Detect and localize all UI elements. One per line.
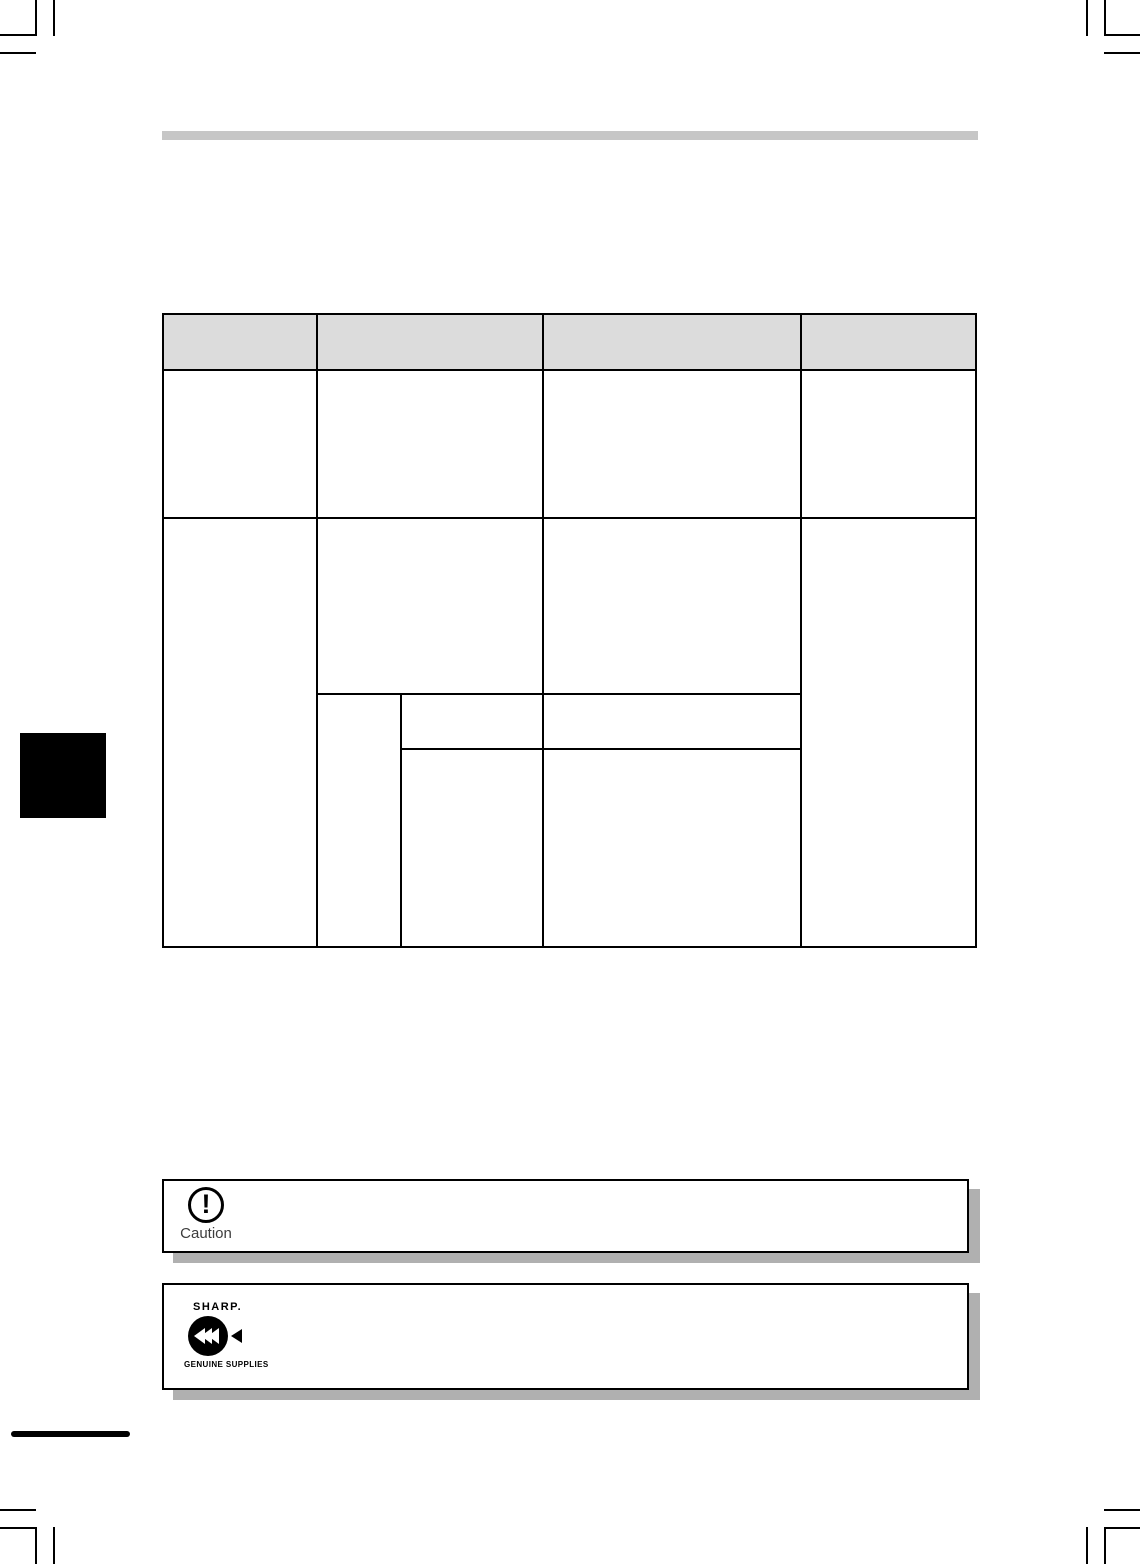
crop-mark-line	[1104, 34, 1140, 36]
grid-line	[164, 517, 975, 519]
left-triangle-icon	[231, 1329, 242, 1343]
crop-mark-line	[0, 1509, 36, 1511]
crop-mark-line	[0, 34, 36, 36]
crop-mark-line	[1086, 1527, 1088, 1564]
crop-mark-line	[35, 0, 37, 36]
table-header-cell	[544, 315, 800, 369]
grid-line	[316, 315, 318, 946]
footer-rule	[11, 1431, 130, 1437]
rewind-arrows-icon	[188, 1316, 228, 1356]
table-header-cell	[318, 315, 542, 369]
crop-mark-line	[35, 1527, 37, 1564]
grid-line	[400, 748, 802, 750]
grid-line	[316, 693, 802, 695]
genuine-supplies-box: SHARP. GENUINE SUPPLIES	[162, 1283, 969, 1390]
section-divider-bar	[162, 131, 978, 140]
crop-mark-line	[53, 1527, 55, 1564]
crop-mark-line	[1086, 0, 1088, 36]
crop-mark-line	[1104, 0, 1106, 36]
crop-mark-line	[1104, 1527, 1106, 1564]
sharp-logo-text: SHARP.	[193, 1301, 242, 1313]
table-header-cell	[164, 315, 316, 369]
crop-mark-line	[53, 0, 55, 36]
crop-mark-line	[1104, 52, 1140, 54]
supplies-table	[162, 313, 977, 948]
exclamation-glyph: !	[202, 1189, 211, 1219]
crop-mark-line	[0, 1527, 36, 1529]
grid-line	[400, 693, 402, 946]
crop-mark-line	[0, 52, 36, 54]
scanned-manual-page: ! Caution SHARP. GENUINE SUPPLIES	[0, 0, 1140, 1564]
crop-mark-line	[1104, 1527, 1140, 1529]
grid-line	[164, 369, 975, 371]
grid-line	[542, 315, 544, 946]
crop-mark-line	[1104, 1509, 1140, 1511]
caution-box: ! Caution	[162, 1179, 969, 1253]
caution-label: Caution	[166, 1225, 246, 1242]
table-header-cell	[802, 315, 975, 369]
chapter-tab	[20, 733, 106, 818]
exclamation-circle-icon: !	[188, 1187, 224, 1223]
grid-line	[800, 315, 802, 946]
genuine-supplies-text: GENUINE SUPPLIES	[184, 1360, 269, 1369]
